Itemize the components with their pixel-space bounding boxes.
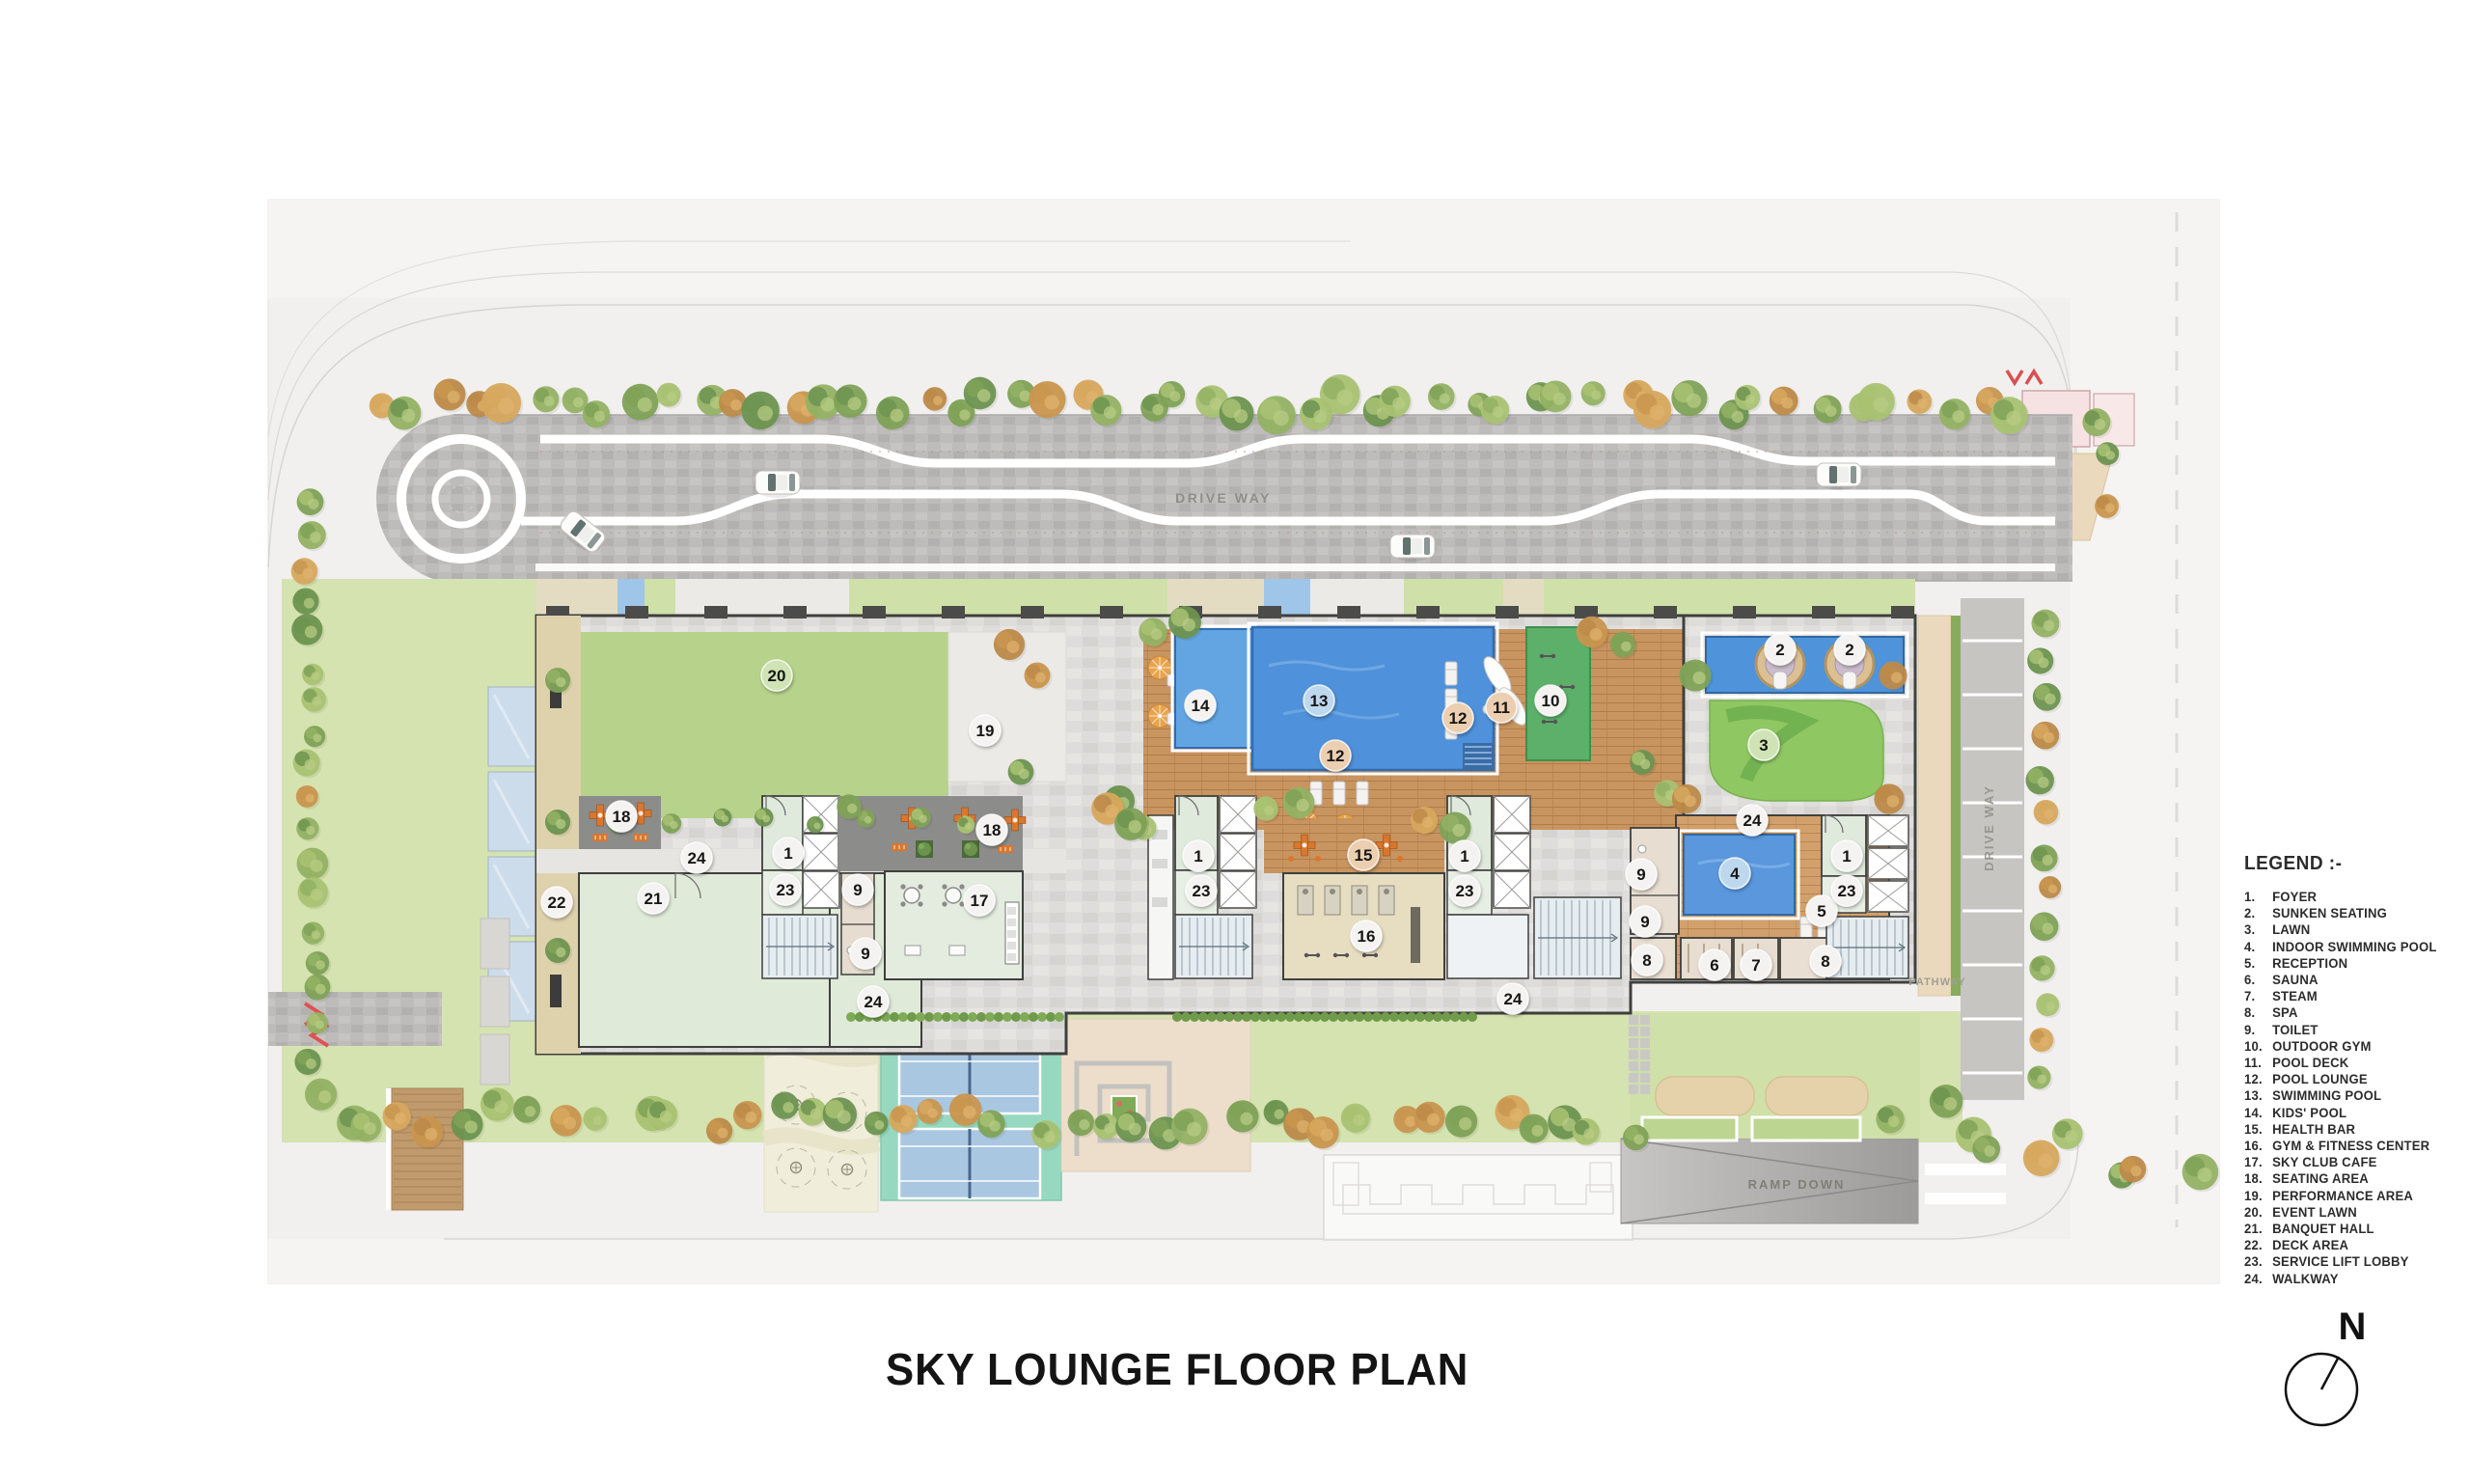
- legend-item-number: 10.: [2244, 1038, 2272, 1055]
- legend-item-label: FOYER: [2272, 889, 2317, 905]
- svg-text:11: 11: [1493, 699, 1510, 717]
- svg-text:8: 8: [1821, 952, 1829, 971]
- legend-item-number: 9.: [2244, 1022, 2272, 1038]
- legend-item: 17.SKY CLUB CAFE: [2244, 1154, 2461, 1170]
- area-marker-3: 3: [1748, 729, 1779, 760]
- legend-item: 20.EVENT LAWN: [2244, 1204, 2461, 1221]
- legend-item: 15.HEALTH BAR: [2244, 1121, 2461, 1138]
- svg-text:21: 21: [645, 890, 663, 908]
- legend-item: 3.LAWN: [2244, 921, 2461, 938]
- area-marker-18: 18: [976, 814, 1007, 845]
- area-marker-17: 17: [964, 885, 995, 916]
- area-marker-8: 8: [1632, 945, 1662, 976]
- legend-item-number: 8.: [2244, 1004, 2272, 1021]
- svg-text:23: 23: [777, 881, 795, 899]
- legend-item-label: KIDS' POOL: [2272, 1105, 2346, 1121]
- svg-text:2: 2: [1775, 641, 1784, 659]
- legend-item-number: 2.: [2244, 905, 2272, 921]
- area-marker-1: 1: [773, 838, 804, 868]
- legend-item-number: 22.: [2244, 1237, 2272, 1253]
- area-marker-2: 2: [1765, 634, 1796, 665]
- area-marker-12: 12: [1442, 702, 1473, 733]
- svg-text:18: 18: [613, 808, 631, 826]
- legend-panel: LEGEND :- 1.FOYER2.SUNKEN SEATING3.LAWN4…: [2244, 853, 2468, 1287]
- svg-text:8: 8: [1642, 951, 1651, 970]
- legend-item-label: INDOOR SWIMMING POOL: [2272, 939, 2436, 955]
- area-marker-11: 11: [1486, 692, 1517, 723]
- svg-text:18: 18: [983, 821, 1002, 839]
- area-marker-19: 19: [970, 715, 1001, 746]
- legend-item-number: 14.: [2244, 1105, 2272, 1121]
- legend-item: 6.SAUNA: [2244, 972, 2461, 988]
- area-marker-20: 20: [761, 660, 792, 691]
- north-label: N: [2339, 1305, 2367, 1348]
- area-marker-21: 21: [638, 883, 669, 914]
- svg-text:14: 14: [1192, 697, 1210, 715]
- legend-item-label: GYM & FITNESS CENTER: [2272, 1138, 2429, 1154]
- area-marker-9: 9: [850, 938, 881, 969]
- legend-item: 22.DECK AREA: [2244, 1237, 2461, 1253]
- legend-item: 10.OUTDOOR GYM: [2244, 1038, 2461, 1055]
- legend-item-label: SAUNA: [2272, 972, 2319, 988]
- north-compass: N: [2267, 1289, 2393, 1434]
- area-marker-16: 16: [1351, 921, 1382, 951]
- svg-text:10: 10: [1542, 692, 1560, 710]
- plan-label: PATHWAY: [1908, 976, 1965, 988]
- legend-item-label: RECEPTION: [2272, 955, 2347, 972]
- legend-item-label: HEALTH BAR: [2272, 1121, 2355, 1138]
- area-marker-22: 22: [541, 887, 572, 918]
- svg-text:9: 9: [853, 881, 862, 899]
- svg-text:22: 22: [548, 893, 566, 912]
- area-marker-24: 24: [681, 842, 712, 873]
- svg-text:7: 7: [1751, 956, 1760, 975]
- area-marker-14: 14: [1185, 690, 1216, 721]
- area-marker-15: 15: [1348, 839, 1379, 870]
- area-marker-9: 9: [1630, 906, 1660, 937]
- svg-text:1: 1: [1460, 847, 1468, 866]
- legend-item-number: 7.: [2244, 988, 2272, 1004]
- legend-item: 4.INDOOR SWIMMING POOL: [2244, 939, 2461, 955]
- svg-text:23: 23: [1456, 882, 1474, 900]
- svg-text:9: 9: [1636, 866, 1645, 884]
- svg-text:17: 17: [971, 892, 989, 910]
- legend-item-number: 15.: [2244, 1121, 2272, 1138]
- legend-list: 1.FOYER2.SUNKEN SEATING3.LAWN4.INDOOR SW…: [2244, 889, 2461, 1287]
- svg-text:16: 16: [1358, 927, 1376, 946]
- area-marker-13: 13: [1304, 685, 1334, 716]
- legend-item-number: 16.: [2244, 1138, 2272, 1154]
- site-plan-drawing: DRIVE WAYDRIVE WAYPATHWAYRAMP DOWN 20191…: [0, 0, 2470, 1484]
- legend-item-number: 4.: [2244, 939, 2272, 955]
- svg-text:9: 9: [861, 945, 869, 963]
- legend-item: 11.POOL DECK: [2244, 1055, 2461, 1071]
- svg-text:24: 24: [688, 849, 706, 867]
- legend-item-label: SPA: [2272, 1004, 2298, 1021]
- legend-item: 8.SPA: [2244, 1004, 2461, 1021]
- legend-item-label: OUTDOOR GYM: [2272, 1038, 2372, 1055]
- legend-item-label: WALKWAY: [2272, 1271, 2339, 1287]
- svg-text:5: 5: [1817, 902, 1825, 921]
- svg-text:23: 23: [1838, 882, 1856, 900]
- legend-item-number: 12.: [2244, 1071, 2272, 1087]
- svg-text:4: 4: [1730, 865, 1740, 883]
- legend-item-label: TOILET: [2272, 1022, 2318, 1038]
- legend-item-label: LAWN: [2272, 921, 2310, 938]
- area-marker-8: 8: [1810, 946, 1841, 976]
- plan-label: RAMP DOWN: [1748, 1177, 1846, 1192]
- svg-text:1: 1: [1194, 847, 1202, 866]
- legend-item: 16.GYM & FITNESS CENTER: [2244, 1138, 2461, 1154]
- area-marker-1: 1: [1831, 840, 1862, 871]
- legend-item-number: 18.: [2244, 1170, 2272, 1187]
- legend-item: 21.BANQUET HALL: [2244, 1221, 2461, 1237]
- legend-item: 18.SEATING AREA: [2244, 1170, 2461, 1187]
- svg-text:20: 20: [768, 667, 786, 685]
- area-marker-1: 1: [1183, 840, 1214, 871]
- legend-item: 14.KIDS' POOL: [2244, 1105, 2461, 1121]
- legend-item-label: SEATING AREA: [2272, 1170, 2369, 1187]
- page-title: SKY LOUNGE FLOOR PLAN: [886, 1343, 1436, 1395]
- area-marker-24: 24: [1497, 983, 1528, 1014]
- legend-item-number: 11.: [2244, 1055, 2272, 1071]
- area-marker-9: 9: [842, 874, 873, 905]
- legend-item-number: 24.: [2244, 1271, 2272, 1287]
- legend-item: 9.TOILET: [2244, 1022, 2461, 1038]
- area-marker-7: 7: [1741, 949, 1771, 980]
- legend-item-number: 13.: [2244, 1087, 2272, 1104]
- svg-text:24: 24: [1504, 990, 1523, 1008]
- legend-item-label: PERFORMANCE AREA: [2272, 1188, 2413, 1204]
- legend-item-label: SWIMMING POOL: [2272, 1087, 2381, 1104]
- legend-item-number: 21.: [2244, 1221, 2272, 1237]
- area-marker-23: 23: [1831, 875, 1862, 906]
- legend-item-number: 5.: [2244, 955, 2272, 972]
- compass-needle: [2321, 1357, 2339, 1389]
- area-marker-5: 5: [1806, 895, 1837, 926]
- area-marker-9: 9: [1626, 859, 1657, 890]
- svg-text:13: 13: [1310, 692, 1329, 710]
- svg-text:12: 12: [1327, 747, 1345, 765]
- area-marker-2: 2: [1834, 634, 1865, 665]
- legend-item-label: SERVICE LIFT LOBBY: [2272, 1253, 2408, 1270]
- area-marker-1: 1: [1449, 840, 1480, 871]
- legend-item-number: 20.: [2244, 1204, 2272, 1221]
- legend-item-label: SUNKEN SEATING: [2272, 905, 2387, 921]
- legend-item-number: 19.: [2244, 1188, 2272, 1204]
- legend-item: 19.PERFORMANCE AREA: [2244, 1188, 2461, 1204]
- legend-item-label: STEAM: [2272, 988, 2318, 1004]
- svg-text:19: 19: [976, 722, 995, 740]
- legend-item: 23.SERVICE LIFT LOBBY: [2244, 1253, 2461, 1270]
- svg-text:23: 23: [1193, 882, 1211, 900]
- svg-text:15: 15: [1355, 846, 1373, 865]
- legend-item-number: 23.: [2244, 1253, 2272, 1270]
- legend-item-label: DECK AREA: [2272, 1237, 2348, 1253]
- legend-item-number: 6.: [2244, 972, 2272, 988]
- svg-text:3: 3: [1759, 736, 1768, 755]
- svg-text:1: 1: [1842, 847, 1851, 866]
- area-marker-18: 18: [606, 801, 637, 832]
- svg-text:2: 2: [1845, 641, 1853, 659]
- svg-text:24: 24: [1743, 811, 1762, 830]
- legend-item: 12.POOL LOUNGE: [2244, 1071, 2461, 1087]
- area-marker-12: 12: [1320, 740, 1351, 771]
- svg-text:6: 6: [1710, 956, 1718, 975]
- area-marker-24: 24: [858, 986, 889, 1017]
- area-marker-4: 4: [1719, 858, 1750, 889]
- legend-item-label: POOL LOUNGE: [2272, 1071, 2368, 1087]
- legend-item: 2.SUNKEN SEATING: [2244, 905, 2461, 921]
- area-marker-23: 23: [1449, 875, 1480, 906]
- svg-text:9: 9: [1640, 913, 1649, 931]
- legend-item-label: EVENT LAWN: [2272, 1204, 2357, 1221]
- svg-text:12: 12: [1449, 709, 1468, 728]
- svg-text:24: 24: [864, 993, 883, 1011]
- area-marker-10: 10: [1535, 685, 1566, 716]
- svg-text:1: 1: [783, 844, 792, 863]
- legend-item: 5.RECEPTION: [2244, 955, 2461, 972]
- area-marker-6: 6: [1699, 949, 1730, 980]
- legend-item-number: 3.: [2244, 921, 2272, 938]
- area-marker-23: 23: [770, 874, 801, 905]
- plan-label: DRIVE WAY: [1175, 490, 1272, 506]
- legend-item-number: 17.: [2244, 1154, 2272, 1170]
- area-marker-24: 24: [1737, 805, 1768, 836]
- legend-item: 13.SWIMMING POOL: [2244, 1087, 2461, 1104]
- legend-item-label: POOL DECK: [2272, 1055, 2348, 1071]
- legend-heading: LEGEND :-: [2244, 853, 2456, 875]
- legend-item-label: BANQUET HALL: [2272, 1221, 2374, 1237]
- legend-item-label: SKY CLUB CAFE: [2272, 1154, 2377, 1170]
- legend-item: 1.FOYER: [2244, 889, 2461, 905]
- sky-lounge-floor-plan-page: DRIVE WAYDRIVE WAYPATHWAYRAMP DOWN 20191…: [0, 0, 2470, 1484]
- area-marker-23: 23: [1186, 875, 1217, 906]
- legend-item: 7.STEAM: [2244, 988, 2461, 1004]
- legend-item: 24.WALKWAY: [2244, 1271, 2461, 1287]
- plan-label: DRIVE WAY: [1982, 784, 1996, 871]
- legend-item-number: 1.: [2244, 889, 2272, 905]
